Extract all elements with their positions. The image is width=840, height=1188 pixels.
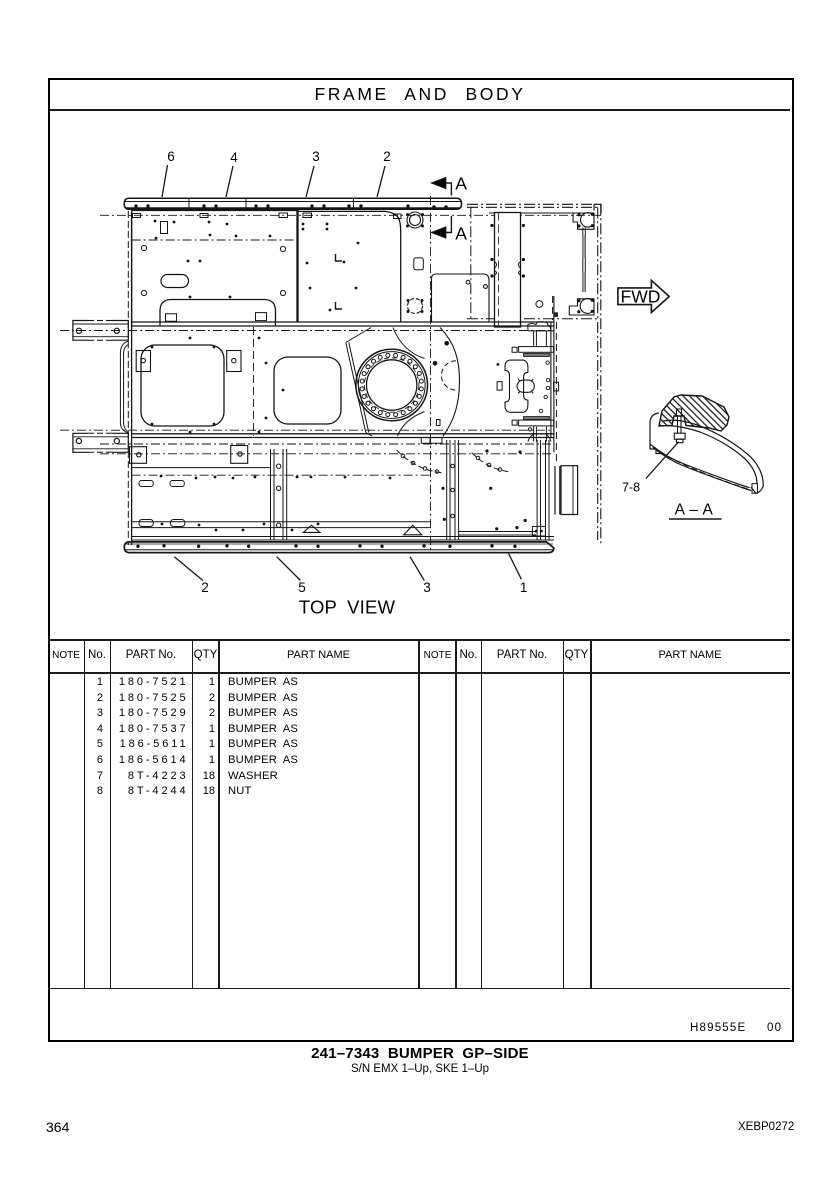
svg-text:3: 3	[312, 149, 320, 164]
svg-text:A: A	[455, 174, 467, 194]
svg-text:A – A: A – A	[675, 502, 714, 519]
svg-text:4: 4	[230, 150, 238, 165]
svg-text:5: 5	[298, 580, 306, 595]
svg-text:7-8: 7-8	[622, 481, 640, 495]
svg-text:1: 1	[520, 580, 528, 595]
svg-text:2: 2	[383, 149, 391, 164]
svg-text:2: 2	[201, 580, 209, 595]
svg-text:A: A	[455, 224, 467, 244]
svg-text:TOP VIEW: TOP VIEW	[299, 597, 396, 618]
svg-text:FWD: FWD	[621, 287, 661, 307]
svg-text:6: 6	[167, 149, 175, 164]
svg-text:3: 3	[423, 580, 431, 595]
